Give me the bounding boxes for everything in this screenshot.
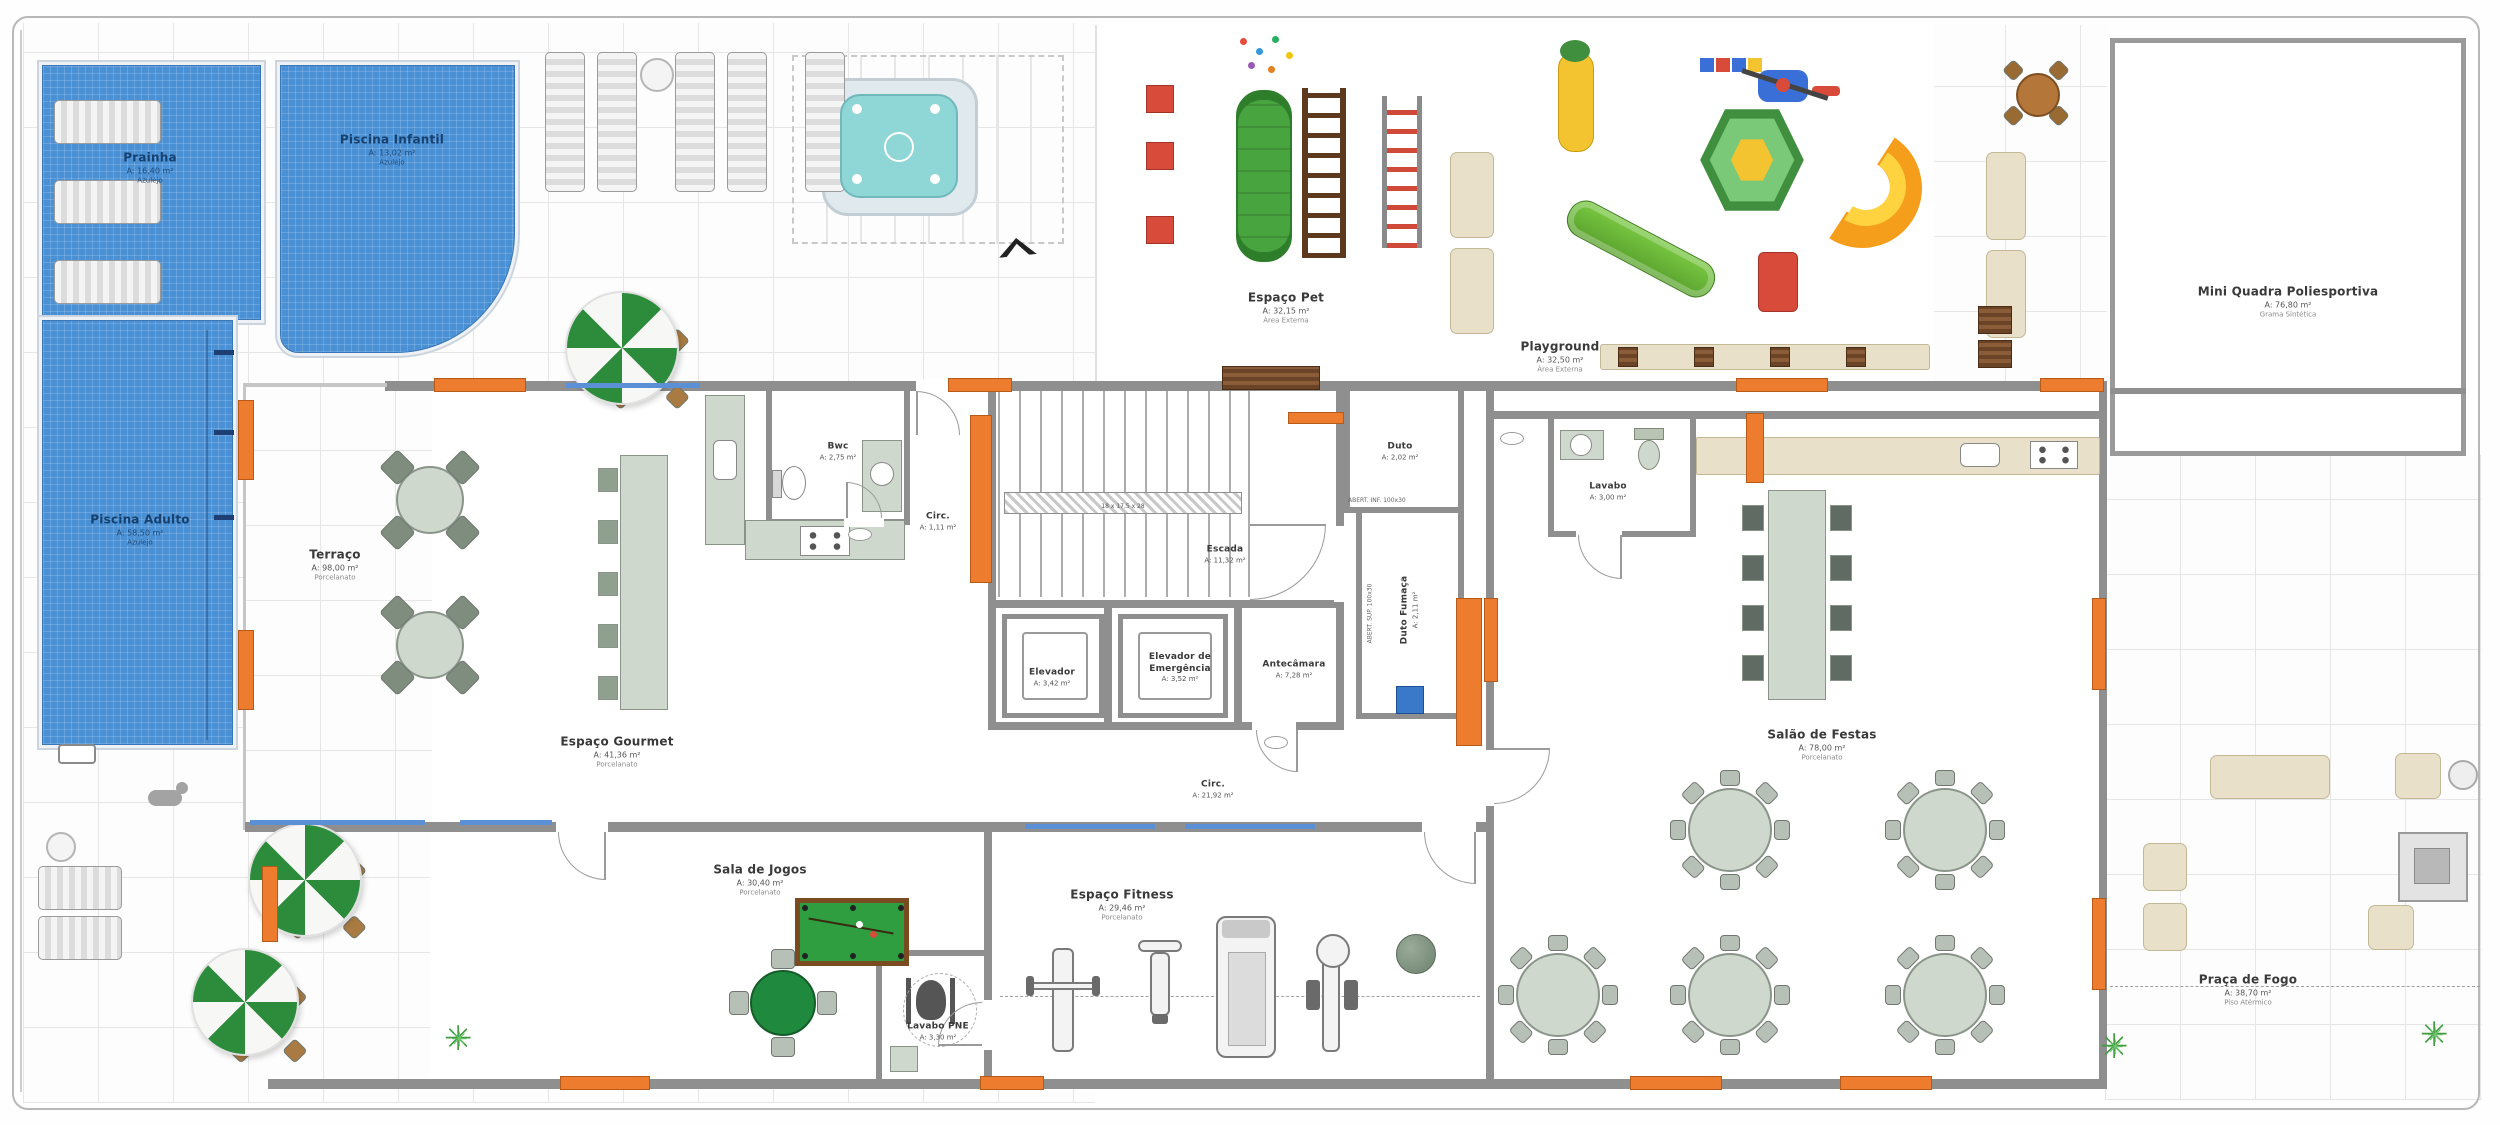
- column: [238, 630, 254, 710]
- elliptical-pedal-icon: [1344, 980, 1358, 1010]
- dog-statue-icon: [148, 790, 182, 806]
- chair-icon: [1885, 985, 1901, 1005]
- room-label-escada: EscadaA: 11,32 m²: [1204, 545, 1245, 566]
- room-label-sala-jogos: Sala de JogosA: 30,40 m²Porcelanato: [713, 862, 806, 897]
- bench: [1450, 152, 1494, 238]
- chair-icon: [1498, 985, 1514, 1005]
- cue-stick-icon: [808, 918, 893, 935]
- column: [262, 866, 278, 942]
- lane-tick: [214, 430, 234, 435]
- plant-icon: ✳✳: [2420, 1018, 2449, 1052]
- bench-slat: [1694, 347, 1714, 367]
- gym-plate-icon: [1026, 976, 1034, 996]
- stair-rail: 18 x 17,5 x 28: [1004, 492, 1242, 514]
- side-table: [2448, 760, 2478, 790]
- wall: [1548, 531, 1696, 537]
- room-label-lavabo-pne: Lavabo PNEA: 3,30 m²: [907, 1022, 969, 1043]
- wall: [1486, 806, 1494, 1089]
- court-divider-wall: [2110, 388, 2466, 394]
- exercise-ball-icon: [1396, 934, 1436, 974]
- terrace-edge: [245, 383, 387, 387]
- play-block: [1716, 58, 1730, 72]
- slat-table: [1978, 340, 2012, 368]
- bench: [1986, 152, 2026, 240]
- glass-wall: [250, 820, 425, 825]
- wall: [1458, 391, 1464, 513]
- pne-sink: [890, 1046, 918, 1072]
- room-label-mini-quadra: Mini Quadra PoliesportivaA: 76,80 m²Gram…: [2198, 284, 2379, 319]
- treadmill-belt-icon: [1228, 952, 1266, 1046]
- sink-icon: [713, 440, 737, 480]
- party-table: [1688, 788, 1772, 872]
- chair-icon: [1548, 1039, 1568, 1055]
- toilet-tank-icon: [772, 470, 782, 498]
- chair-icon: [1935, 935, 1955, 951]
- basin-icon: [870, 462, 894, 486]
- party-table: [1516, 953, 1600, 1037]
- parasol-icon: [191, 948, 299, 1056]
- spa-center-jet: [884, 132, 914, 162]
- chair-icon: [1720, 874, 1740, 890]
- bike-seat-icon: [1152, 1014, 1168, 1024]
- stool: [598, 624, 618, 648]
- room-label-espaco-pet: Espaço PetA: 32,15 m²Área Externa: [1248, 290, 1324, 325]
- spring-toy-top: [1560, 40, 1590, 62]
- spa-jet: [930, 104, 940, 114]
- glass-wall: [460, 820, 552, 825]
- gym-bench-icon: [1052, 948, 1074, 1052]
- chair: [1830, 605, 1852, 631]
- slat-table: [1978, 306, 2012, 334]
- lounger: [54, 100, 161, 144]
- door-gap: [982, 1000, 994, 1050]
- boundary-sketch-line: [20, 30, 22, 1092]
- door-gap: [844, 517, 884, 527]
- armchair: [2395, 753, 2441, 799]
- chair-icon: [1989, 985, 2005, 1005]
- pet-obstacle: [1146, 216, 1174, 244]
- chair-icon: [1720, 935, 1740, 951]
- lounger: [675, 52, 715, 192]
- column: [1746, 413, 1764, 483]
- elevator-cab: [1022, 632, 1088, 700]
- room-label-antecamara: AntecâmaraA: 7,28 m²: [1262, 660, 1325, 681]
- room-label-playground: PlaygroundA: 32,50 m²Área Externa: [1521, 339, 1600, 374]
- room-label-piscina-adulto: Piscina AdultoA: 58,50 m²Azulejo: [90, 512, 189, 547]
- elliptical-flywheel-icon: [1316, 934, 1350, 968]
- wall: [766, 391, 772, 525]
- room-label-circ2: Circ.A: 21,92 m²: [1192, 780, 1233, 801]
- games-table: [750, 970, 816, 1036]
- column: [948, 378, 1012, 392]
- chair-icon: [817, 991, 837, 1015]
- chair-icon: [1670, 820, 1686, 840]
- spa-jet: [930, 174, 940, 184]
- chair: [1830, 655, 1852, 681]
- toilet-icon: [782, 466, 806, 500]
- wall: [1344, 391, 1350, 513]
- chair-icon: [1935, 1039, 1955, 1055]
- chair-icon: [1989, 820, 2005, 840]
- dog-statue-head-icon: [176, 782, 188, 794]
- column: [2040, 378, 2104, 392]
- chair: [1742, 505, 1764, 531]
- floor-plan: 18 x 17,5 x 28 ✳✳: [0, 0, 2500, 1125]
- treadmill-console-icon: [1222, 920, 1270, 938]
- round-table: [396, 611, 464, 679]
- chair-icon: [1935, 874, 1955, 890]
- spa-jet: [852, 104, 862, 114]
- elliptical-pedal-icon: [1306, 980, 1320, 1010]
- room-label-praca-fogo: Praça de FogoA: 38,70 m²Piso Atérmico: [2199, 972, 2298, 1007]
- wall: [904, 391, 910, 525]
- lounger: [545, 52, 585, 192]
- lane-tick: [214, 350, 234, 355]
- chair-icon: [771, 949, 795, 969]
- room-label-piscina-infantil: Piscina InfantilA: 13,02 m²Azulejo: [340, 132, 444, 167]
- chair-icon: [1720, 770, 1740, 786]
- chair-icon: [771, 1037, 795, 1057]
- room-label-terraco: TerraçoA: 98,00 m²Porcelanato: [309, 547, 360, 582]
- wall: [1344, 507, 1464, 513]
- wall: [1690, 415, 1696, 537]
- room-label-salao-festas: Salão de FestasA: 78,00 m²Porcelanato: [1767, 727, 1876, 762]
- wall: [1104, 608, 1112, 722]
- gym-barbell-icon: [1028, 982, 1098, 990]
- stool: [598, 520, 618, 544]
- plant-icon: ✳✳: [2100, 1030, 2129, 1064]
- pool-table: [795, 898, 909, 966]
- column: [1288, 412, 1344, 424]
- gym-plate-icon: [1092, 976, 1100, 996]
- chair-icon: [1670, 985, 1686, 1005]
- room-label-espaco-fitness: Espaço FitnessA: 29,46 m²Porcelanato: [1070, 887, 1173, 922]
- chair-icon: [1548, 935, 1568, 951]
- bench-slat: [1618, 347, 1638, 367]
- play-block: [1700, 58, 1714, 72]
- sink-icon: [1960, 443, 2000, 467]
- duto-spec-text: ABERT. INF. 100x30: [1348, 497, 1406, 504]
- confetti-dot: [1256, 48, 1263, 55]
- pet-ladder-icon: [1302, 88, 1346, 258]
- long-table: [1768, 490, 1826, 700]
- room-label-lavabo: LavaboA: 3,00 m²: [1589, 482, 1627, 503]
- glass-wall: [566, 383, 700, 388]
- room-label-espaco-gourmet: Espaço GourmetA: 41,36 m²Porcelanato: [560, 734, 673, 769]
- column: [1840, 1076, 1932, 1090]
- column: [2092, 898, 2106, 990]
- confetti-dot: [1240, 38, 1247, 45]
- pet-agility-ladder-icon: [1382, 96, 1422, 248]
- stair-spec-text: 18 x 17,5 x 28: [1101, 503, 1144, 510]
- chair-icon: [1885, 820, 1901, 840]
- pet-obstacle: [1146, 142, 1174, 170]
- door-tag: [848, 528, 872, 541]
- column: [1484, 598, 1498, 682]
- wall: [996, 600, 1336, 608]
- glass-wall: [1185, 824, 1315, 829]
- wall: [1356, 513, 1362, 719]
- spring-toy-icon: [1558, 52, 1594, 152]
- side-table: [640, 58, 674, 92]
- bench-slat: [1770, 347, 1790, 367]
- confetti-dot: [1248, 62, 1255, 69]
- fire-pit-inner: [2414, 848, 2450, 884]
- wall: [876, 950, 882, 1087]
- basin-icon: [1570, 434, 1592, 456]
- side-table: [46, 832, 76, 862]
- party-table: [1903, 953, 1987, 1037]
- room-label-circ1: Circ.A: 1,11 m²: [920, 512, 957, 533]
- door-tag: [1500, 432, 1524, 445]
- shaft-box: [1396, 686, 1424, 714]
- column: [1736, 378, 1828, 392]
- column: [970, 415, 992, 583]
- toy-helicopter-hub-icon: [1776, 78, 1790, 92]
- wall: [1490, 411, 2107, 419]
- armchair: [2143, 843, 2187, 891]
- column: [1630, 1076, 1722, 1090]
- lounger: [727, 52, 767, 192]
- patio-table: [2016, 73, 2060, 117]
- pet-obstacle: [1146, 85, 1174, 113]
- lounger: [38, 916, 122, 960]
- stool: [598, 468, 618, 492]
- lane-line: [206, 330, 208, 740]
- column: [434, 378, 526, 392]
- room-label-elevador: ElevadorA: 3,42 m²: [1029, 668, 1075, 689]
- armchair: [2368, 905, 2414, 950]
- confetti-dot: [1268, 66, 1275, 73]
- stool: [598, 572, 618, 596]
- column: [238, 400, 254, 480]
- room-label-elevador-emergencia: Elevador de EmergênciaA: 3,52 m²: [1130, 652, 1230, 684]
- kids-pool: [280, 65, 515, 353]
- pet-tunnel-icon: [1236, 90, 1292, 262]
- playground-edge-bench: [1600, 344, 1930, 370]
- lounger: [38, 866, 122, 910]
- lounger: [805, 52, 845, 192]
- confetti-dot: [1272, 36, 1279, 43]
- duto-fumaca-spec-text: ABERT. SUP. 100x30: [1366, 584, 1373, 644]
- toilet-tank-icon: [1634, 428, 1664, 440]
- column: [560, 1076, 650, 1090]
- red-play-box: [1758, 252, 1798, 312]
- chair-icon: [1720, 1039, 1740, 1055]
- toilet-icon: [1638, 440, 1660, 470]
- bike-handlebar-icon: [1138, 940, 1182, 952]
- chair: [1830, 555, 1852, 581]
- chair-icon: [1935, 770, 1955, 786]
- chair-icon: [1602, 985, 1618, 1005]
- wall: [268, 1079, 2107, 1089]
- room-label-prainha: PrainhaA: 16,40 m²Azulejo: [123, 150, 177, 185]
- stove-icon: [800, 526, 850, 556]
- lounger: [54, 260, 161, 304]
- exercise-bike-icon: [1150, 952, 1170, 1016]
- armchair: [2143, 903, 2187, 951]
- chair: [1742, 605, 1764, 631]
- round-table: [396, 466, 464, 534]
- stool: [598, 676, 618, 700]
- bench-slat: [1846, 347, 1866, 367]
- sofa: [2210, 755, 2330, 799]
- door-gap: [1334, 526, 1346, 602]
- wall: [1486, 385, 1494, 750]
- pool-ladder-icon: [58, 744, 96, 764]
- wall: [1234, 608, 1242, 722]
- chair-icon: [729, 991, 749, 1015]
- chair: [1830, 505, 1852, 531]
- buffet-table: [620, 455, 668, 710]
- room-label-bwc: BwcA: 2,75 m²: [820, 442, 857, 463]
- door-tag: [1264, 736, 1288, 749]
- chair-icon: [1774, 985, 1790, 1005]
- lounger: [597, 52, 637, 192]
- lounger: [54, 180, 161, 224]
- chair-icon: [1774, 820, 1790, 840]
- room-label-duto: DutoA: 2,02 m²: [1382, 442, 1419, 463]
- stove-icon: [2030, 441, 2078, 469]
- chair: [1742, 655, 1764, 681]
- plant-icon: ✳✳: [444, 1022, 473, 1056]
- column: [980, 1076, 1044, 1090]
- party-table: [1688, 953, 1772, 1037]
- confetti-dot: [1286, 52, 1293, 59]
- lane-tick: [214, 515, 234, 520]
- room-label-duto-fumaca: Duto FumaçaA: 2,11 m²: [1400, 576, 1421, 645]
- glass-wall: [1025, 824, 1155, 829]
- bench: [1450, 248, 1494, 334]
- column: [1456, 598, 1482, 746]
- column: [2092, 598, 2106, 690]
- chair: [1742, 555, 1764, 581]
- pet-bench: [1222, 366, 1320, 390]
- wall: [1548, 415, 1554, 537]
- spa-jet: [852, 174, 862, 184]
- party-table: [1903, 788, 1987, 872]
